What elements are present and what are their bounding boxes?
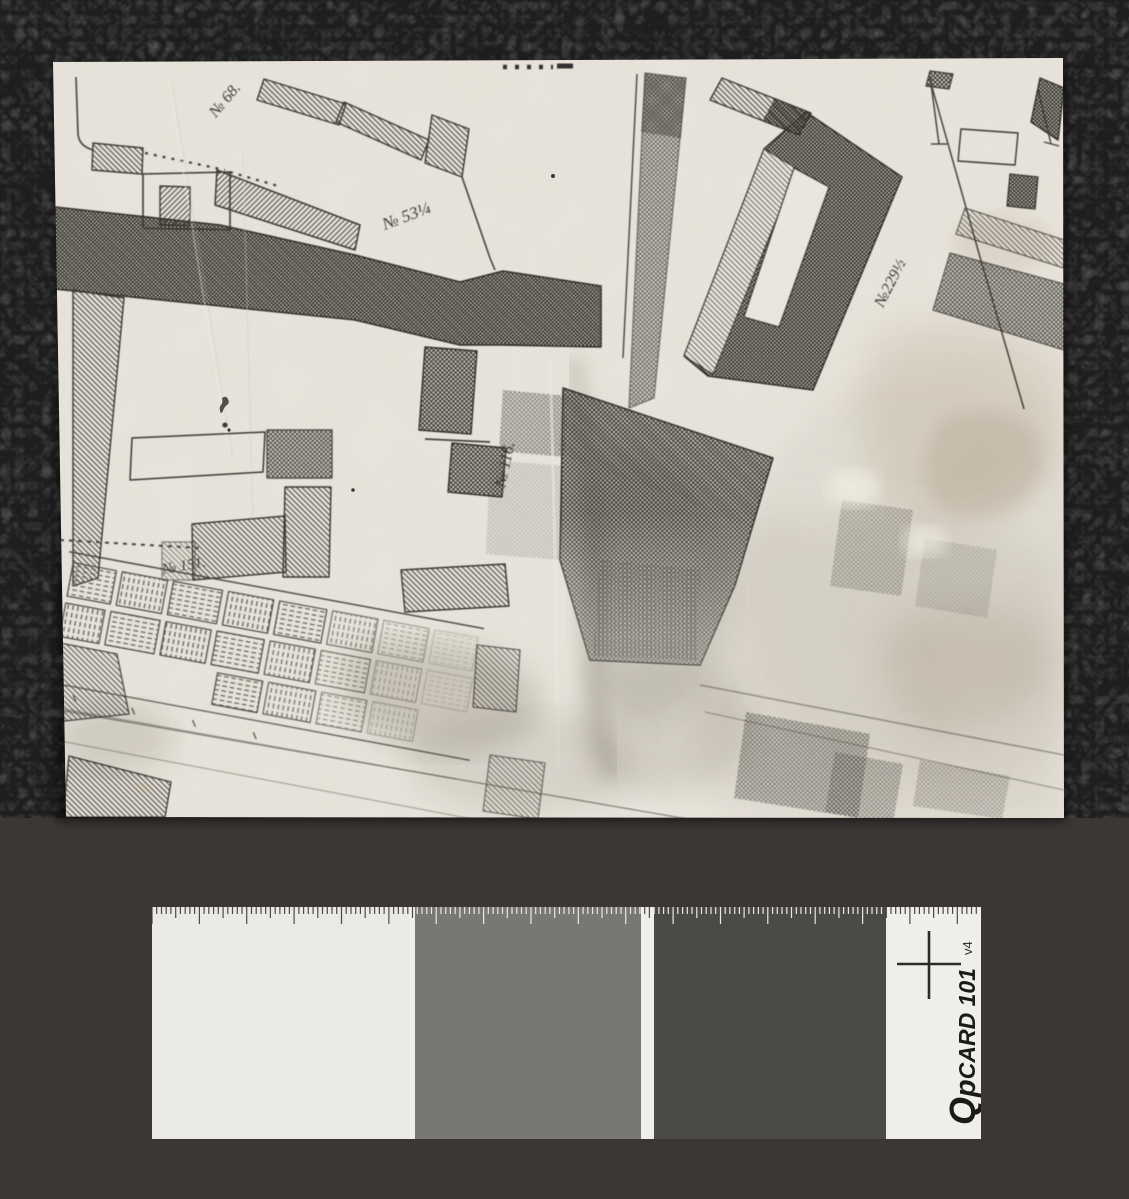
svg-text:v4: v4 [960, 941, 975, 955]
